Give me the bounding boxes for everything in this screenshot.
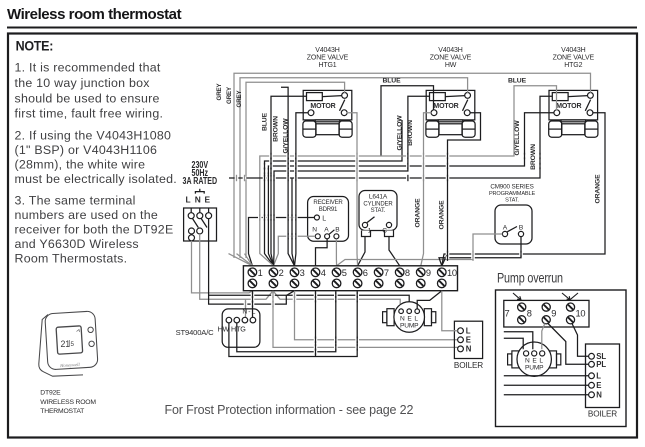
svg-text:receiver for both the DT92E: receiver for both the DT92E [15, 223, 174, 237]
svg-text:3: 3 [300, 268, 305, 278]
svg-text:first time, fault free wiring.: first time, fault free wiring. [15, 107, 164, 121]
svg-text:HW: HW [445, 62, 457, 69]
svg-text:C: C [382, 227, 387, 234]
svg-text:5: 5 [342, 268, 347, 278]
svg-text:N: N [242, 309, 247, 316]
svg-text:BLUE: BLUE [508, 78, 527, 85]
svg-text:ZONE VALVE: ZONE VALVE [307, 55, 349, 62]
svg-text:ORANGE: ORANGE [595, 174, 602, 204]
svg-text:E: E [205, 194, 211, 204]
svg-text:21: 21 [61, 339, 71, 349]
svg-text:BDR91: BDR91 [319, 206, 338, 213]
svg-text:V4043H: V4043H [315, 47, 339, 54]
svg-text:10: 10 [447, 268, 457, 278]
svg-text:7: 7 [505, 308, 510, 318]
svg-text:L: L [322, 215, 326, 222]
svg-text:(1" BSP) or V4043H1106: (1" BSP) or V4043H1106 [15, 143, 158, 157]
svg-text:BOILER: BOILER [588, 410, 617, 419]
svg-text:BOILER: BOILER [454, 361, 483, 370]
svg-text:ORANGE: ORANGE [439, 200, 446, 230]
svg-text:GREY: GREY [236, 90, 243, 108]
svg-text:7: 7 [384, 268, 389, 278]
svg-text:10: 10 [576, 308, 586, 318]
svg-text:B: B [519, 224, 524, 231]
svg-text:BROWN: BROWN [530, 144, 537, 170]
svg-text:3A RATED: 3A RATED [183, 175, 218, 186]
svg-text:1: 1 [258, 268, 263, 278]
svg-text:should be used to ensure: should be used to ensure [15, 91, 160, 105]
svg-text:A: A [324, 226, 329, 233]
svg-text:BROWN: BROWN [407, 120, 414, 146]
svg-text:MOTOR: MOTOR [556, 103, 581, 110]
svg-text:Wireless room thermostat: Wireless room thermostat [7, 6, 182, 23]
svg-text:8: 8 [527, 308, 532, 318]
svg-text:GREY: GREY [216, 83, 223, 101]
svg-text:WIRELESS ROOM: WIRELESS ROOM [40, 399, 96, 406]
svg-text:BLUE: BLUE [383, 78, 402, 85]
svg-text:N: N [596, 391, 602, 400]
svg-text:(28mm), the white wire: (28mm), the white wire [15, 158, 146, 172]
svg-text:6: 6 [363, 268, 368, 278]
svg-text:MOTOR: MOTOR [310, 103, 335, 110]
svg-text:L641A: L641A [369, 194, 388, 201]
svg-text:the 10 way junction box: the 10 way junction box [15, 76, 151, 90]
svg-text:Room Thermostats.: Room Thermostats. [15, 252, 128, 266]
svg-text:CYLINDER: CYLINDER [363, 201, 393, 207]
svg-text:2. If using the V4043H1080: 2. If using the V4043H1080 [15, 128, 172, 142]
svg-text:Pump overrun: Pump overrun [497, 270, 563, 285]
svg-text:2: 2 [279, 268, 284, 278]
svg-text:V4043H: V4043H [438, 47, 462, 54]
svg-text:L: L [466, 327, 471, 336]
svg-text:and Y6630D Wireless: and Y6630D Wireless [15, 237, 139, 251]
svg-text:A: A [503, 224, 508, 231]
svg-text:4: 4 [321, 268, 326, 278]
svg-text:HTG2: HTG2 [564, 62, 582, 69]
svg-text:THERMOSTAT: THERMOSTAT [40, 408, 84, 415]
svg-text:PROGRAMMABLE: PROGRAMMABLE [489, 191, 535, 197]
svg-text:HTG1: HTG1 [318, 62, 336, 69]
svg-text:NOTE:: NOTE: [16, 38, 53, 54]
svg-text:ZONE VALVE: ZONE VALVE [553, 55, 595, 62]
svg-text:9: 9 [426, 268, 431, 278]
svg-text:HW: HW [217, 325, 229, 334]
svg-text:3. The same terminal: 3. The same terminal [15, 193, 136, 207]
svg-text:V4043H: V4043H [561, 47, 585, 54]
svg-text:L: L [185, 194, 190, 204]
svg-text:-: - [248, 309, 250, 316]
svg-text:1. It is recommended that: 1. It is recommended that [15, 61, 161, 75]
svg-text:CM900 SERIES: CM900 SERIES [490, 184, 533, 191]
svg-text:BROWN: BROWN [273, 116, 280, 142]
svg-text:PL: PL [596, 360, 606, 369]
svg-text:must be electrically isolated.: must be electrically isolated. [15, 172, 177, 186]
svg-text:G/YELLOW: G/YELLOW [283, 118, 290, 154]
svg-text:BLUE: BLUE [262, 112, 269, 131]
svg-text:DT92E: DT92E [40, 390, 61, 397]
svg-text:For Frost Protection informati: For Frost Protection information - see p… [165, 403, 414, 417]
svg-text:8: 8 [405, 268, 410, 278]
svg-text:STAT.: STAT. [371, 208, 386, 214]
svg-text:GREY: GREY [226, 86, 233, 104]
svg-text:9: 9 [551, 308, 556, 318]
svg-text:N: N [466, 345, 472, 354]
svg-text:B: B [335, 226, 340, 233]
svg-text:E: E [596, 381, 601, 390]
svg-text:N: N [195, 194, 201, 204]
svg-text:ST9400A/C: ST9400A/C [176, 328, 215, 337]
svg-text:HTG: HTG [231, 325, 246, 334]
svg-text:L: L [596, 372, 601, 381]
svg-text:PUMP: PUMP [525, 365, 544, 372]
svg-text:G/YELLOW: G/YELLOW [397, 115, 404, 151]
svg-text:STAT.: STAT. [505, 197, 519, 203]
svg-text:ZONE VALVE: ZONE VALVE [430, 55, 472, 62]
svg-text:MOTOR: MOTOR [433, 103, 458, 110]
svg-text:ORANGE: ORANGE [415, 198, 422, 228]
svg-text:numbers are used on the: numbers are used on the [15, 208, 159, 222]
svg-text:1: 1 [368, 227, 372, 234]
svg-text:G/YELLOW: G/YELLOW [514, 120, 521, 156]
svg-text:PUMP: PUMP [400, 322, 419, 329]
svg-text:N: N [312, 226, 317, 233]
svg-text:E: E [466, 336, 471, 345]
